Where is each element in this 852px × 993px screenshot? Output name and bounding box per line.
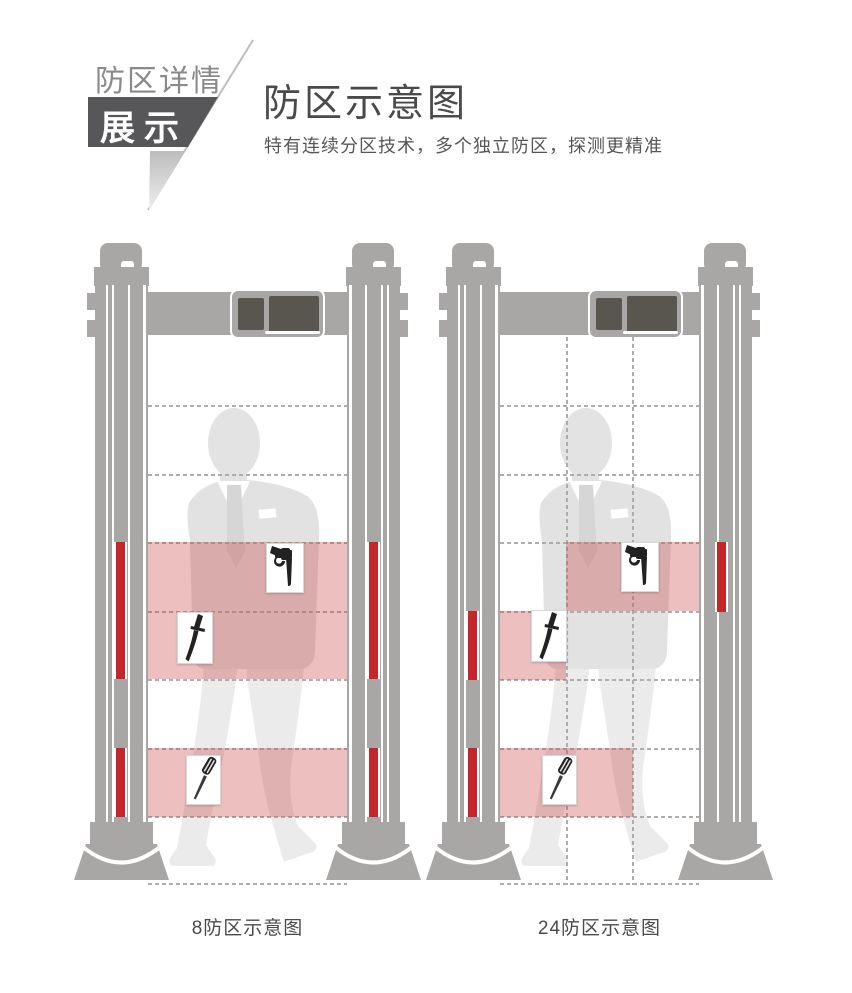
gate-caption: 8防区示意图 (95, 913, 400, 940)
detected-item-card (542, 755, 577, 805)
zone-grid-line (148, 405, 347, 407)
detection-area (148, 337, 347, 885)
detected-item-card (177, 612, 213, 664)
badge-box-label: 展示 (100, 100, 188, 151)
column-hinge-tab (439, 320, 448, 337)
detected-item-card (266, 543, 304, 593)
dagger-icon (178, 612, 212, 664)
dagger-icon (532, 610, 566, 662)
panel-step-detail (265, 331, 320, 334)
column-hinge-tab (439, 293, 448, 310)
zone-grid-line (500, 405, 699, 407)
metal-detector-gate-24zone: 24防区示意图 (447, 237, 752, 957)
column-cap (698, 267, 753, 286)
column-hinge-tab (751, 293, 760, 310)
panel-screen-large (269, 296, 319, 332)
column-cap (94, 267, 149, 286)
panel-screen-large (627, 296, 677, 332)
zone-grid-line (148, 474, 347, 476)
screwdriver-icon (543, 755, 576, 805)
detected-item-card (186, 755, 221, 805)
zone-grid-line (148, 883, 347, 885)
column-hinge-tab (87, 320, 96, 337)
column-hinge-tab (87, 293, 96, 310)
zone-grid-line (148, 679, 347, 681)
revolver-icon (267, 544, 303, 592)
gate-column-left (447, 285, 500, 822)
revolver-icon (622, 543, 658, 591)
alarm-led-strip (114, 748, 127, 817)
page-title: 防区示意图 (263, 72, 468, 127)
alarm-led-strip (114, 542, 127, 679)
alarm-zone (148, 748, 347, 817)
alarm-led-strip (367, 748, 380, 817)
alarm-led-strip (715, 542, 728, 612)
panel-screen-small (238, 298, 264, 330)
zone-grid-line (500, 474, 699, 476)
control-panel (230, 289, 325, 339)
subtitle: 特有连续分区技术，多个独立防区，探测更精准 (264, 132, 663, 158)
panel-screen-small (596, 298, 622, 330)
detected-item-card (531, 610, 567, 662)
column-hinge-tab (399, 293, 408, 310)
alarm-led-strip (466, 748, 479, 817)
detection-area (500, 337, 699, 885)
badge-label: 防区详情 (95, 56, 223, 100)
column-cap (446, 267, 501, 286)
column-hinge-tab (751, 320, 760, 337)
zone-grid-line (500, 883, 699, 885)
column-cap (346, 267, 401, 286)
metal-detector-gate-8zone: 8防区示意图 (95, 237, 400, 957)
poster: 防区详情 展示 防区示意图 特有连续分区技术，多个独立防区，探测更精准 (0, 0, 852, 993)
alarm-led-strip (367, 542, 380, 679)
column-hinge-tab (399, 320, 408, 337)
panel-step-detail (623, 331, 678, 334)
alarm-led-strip (466, 611, 479, 680)
gate-caption: 24防区示意图 (447, 913, 752, 940)
screwdriver-icon (187, 755, 220, 805)
control-panel (588, 289, 683, 339)
detected-item-card (621, 542, 659, 592)
